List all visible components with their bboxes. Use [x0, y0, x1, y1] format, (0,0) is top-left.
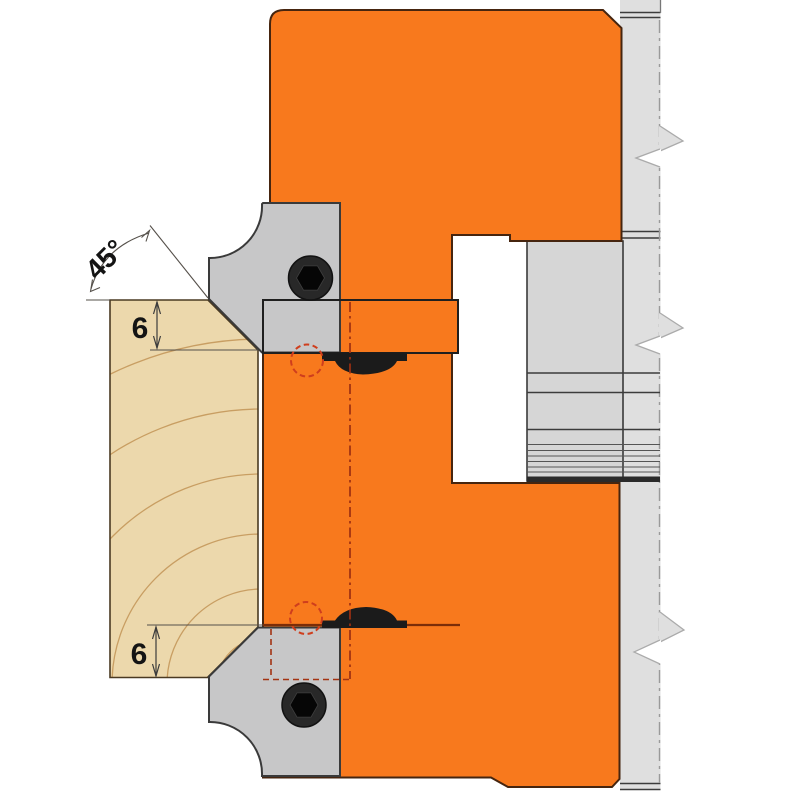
lower-hex-screw	[282, 683, 326, 727]
spindle-shaft	[620, 0, 684, 790]
cutterhead-diagram: 45° 6 6	[0, 0, 800, 800]
shaft-section	[620, 0, 661, 790]
cutterhead-diagram-page: 45° 6 6	[0, 0, 800, 800]
bottom-depth-label: 6	[131, 638, 148, 671]
angle-leader-line	[150, 226, 208, 299]
upper-hex-screw	[289, 256, 333, 300]
top-depth-label: 6	[132, 312, 149, 345]
knife-pocket-fill	[340, 300, 459, 353]
angle-label: 45°	[79, 233, 131, 285]
arrowhead-icon	[142, 231, 150, 242]
nut-bottom-band	[527, 477, 660, 483]
angle-dimension: 45°	[79, 226, 208, 301]
